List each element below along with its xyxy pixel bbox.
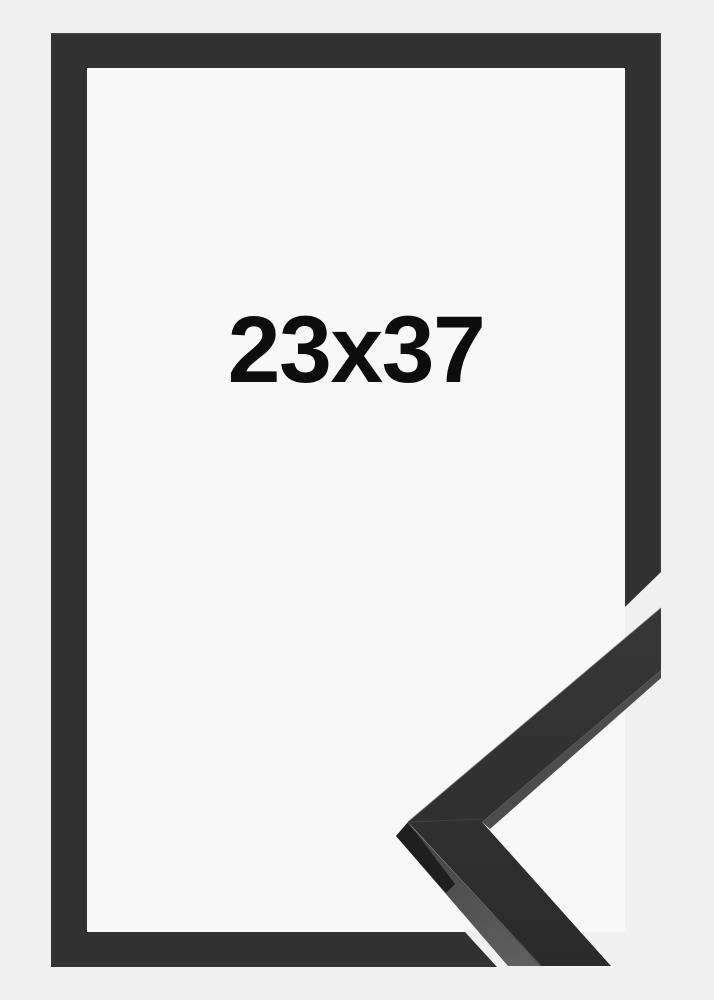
frame-top-edge-highlight xyxy=(51,33,661,35)
frame-right-edge-highlight xyxy=(660,33,661,572)
frame-opening xyxy=(87,68,625,932)
frame-product-image: 23x37 xyxy=(0,0,714,1000)
frame-product-graphic: 23x37 xyxy=(0,0,714,1000)
size-label: 23x37 xyxy=(228,297,485,403)
